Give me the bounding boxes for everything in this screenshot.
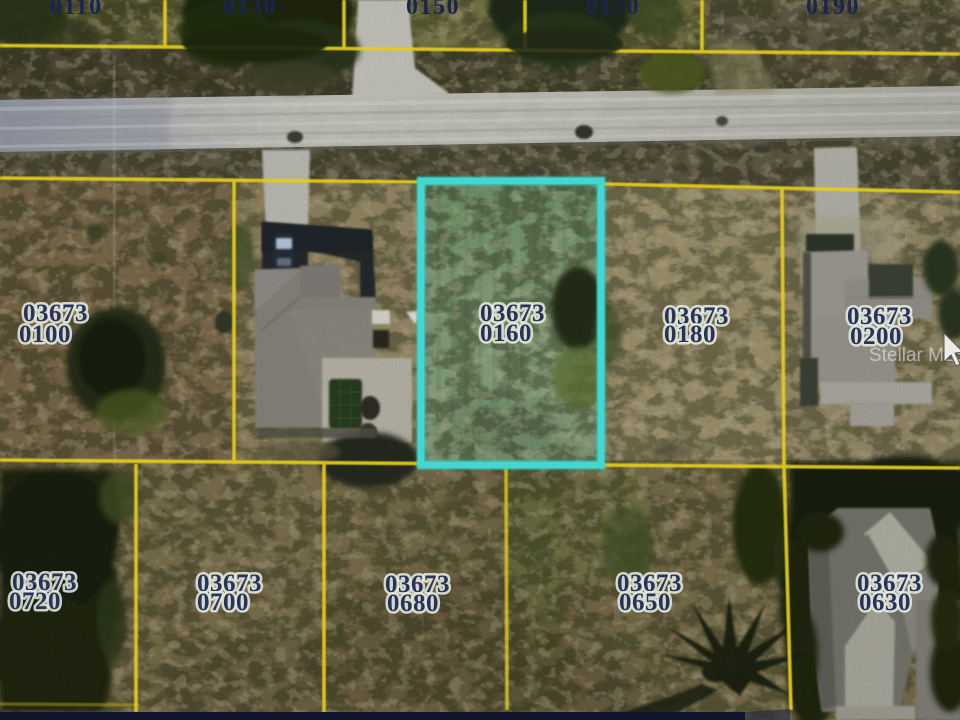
svg-text:0190: 0190 [806,0,860,20]
svg-text:0630: 0630 [859,589,911,616]
svg-text:0170: 0170 [586,0,640,20]
svg-text:0110: 0110 [50,0,103,20]
svg-text:0680: 0680 [387,590,439,617]
svg-text:0720: 0720 [9,588,61,615]
svg-text:0150: 0150 [406,0,460,20]
svg-text:0100: 0100 [19,321,71,348]
svg-text:0650: 0650 [619,589,671,616]
svg-text:0180: 0180 [664,321,716,348]
svg-text:0700: 0700 [197,589,249,616]
svg-text:0160: 0160 [480,320,532,347]
svg-text:0130: 0130 [223,0,277,20]
